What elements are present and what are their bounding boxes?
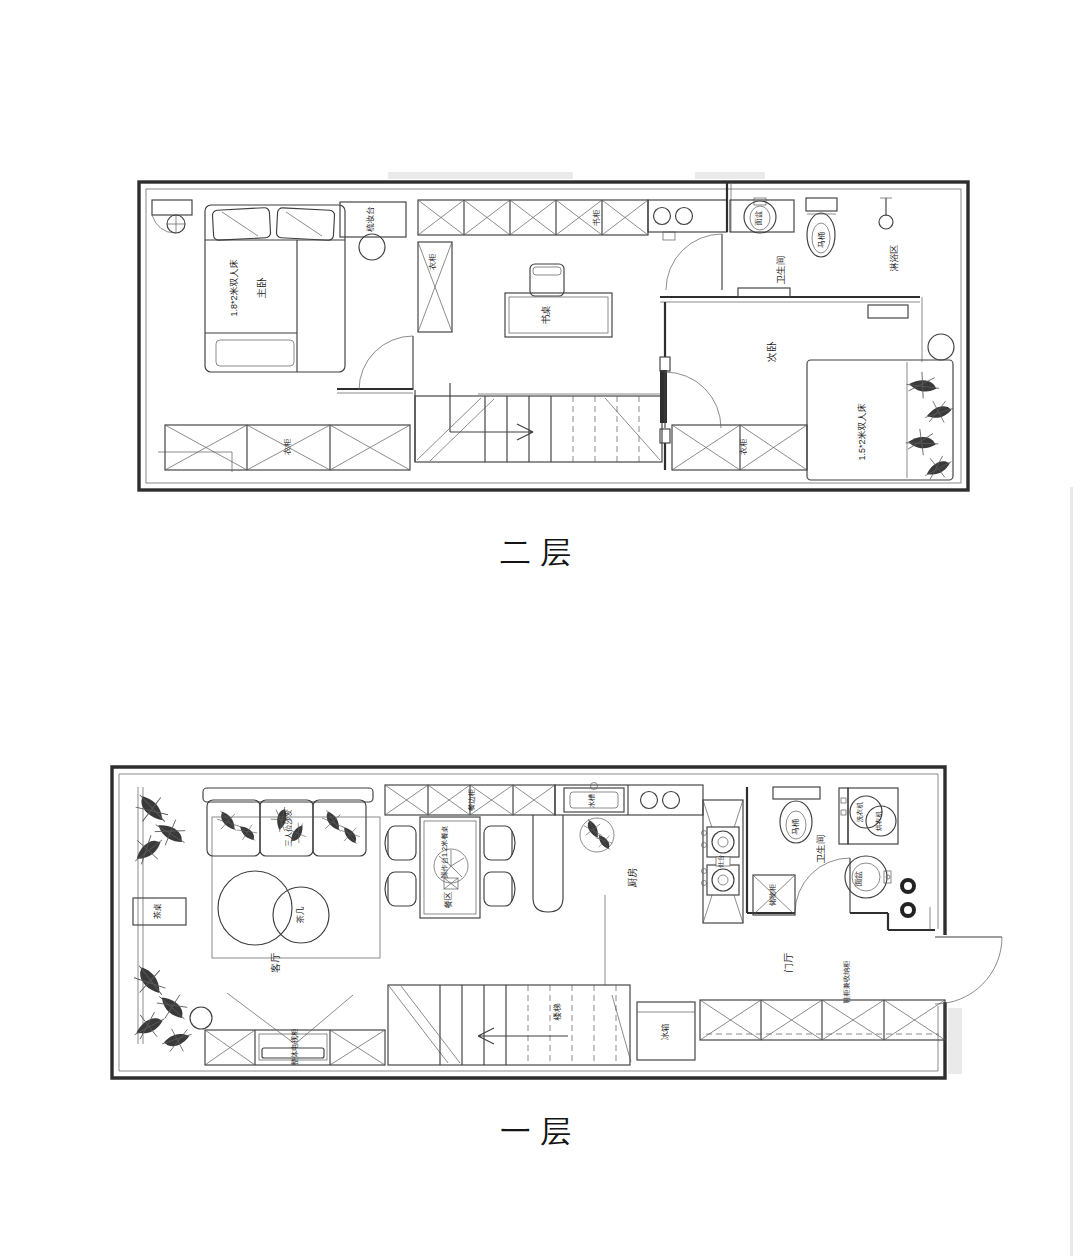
- label-basin-floor2: 面盆: [754, 210, 763, 227]
- floor2-plan: 1.8*2米双人床 主卧 梳妆台 书柜 衣柜: [139, 182, 968, 570]
- label-dining-table: 操作台1.2米餐桌: [440, 825, 449, 878]
- label-bathroom-floor1: 卫生间: [815, 835, 826, 864]
- scan-shadow: [388, 172, 573, 179]
- plant-upper: [127, 786, 192, 869]
- label-shoe-cabinet: 鞋柜兼收纳柜: [842, 960, 851, 1003]
- label-sideboard: 餐边柜: [467, 788, 476, 811]
- floor2-title: 二层: [500, 534, 580, 570]
- label-second-bed-size: 1.5*2米双人床: [857, 403, 867, 460]
- label-kitchen: 厨房: [627, 868, 638, 888]
- label-dining-area: 餐区: [443, 892, 453, 909]
- label-wardrobe-right: 衣柜: [739, 438, 748, 455]
- floor-plan-drawing: 1.8*2米双人床 主卧 梳妆台 书柜 衣柜: [0, 0, 1080, 1256]
- label-foyer: 门厅: [783, 953, 794, 973]
- label-toilet-floor1: 马桶: [791, 819, 800, 835]
- label-bathroom-floor2: 卫生间: [775, 256, 786, 285]
- label-washer: 洗衣机: [856, 802, 864, 824]
- label-wardrobe-column: 衣柜: [428, 253, 437, 270]
- ceiling-unit-symbol: [152, 200, 192, 233]
- scan-shadow: [695, 172, 765, 179]
- label-fridge: 冰箱: [660, 1023, 670, 1041]
- label-stairs: 楼梯: [552, 1003, 562, 1021]
- desk: [505, 264, 612, 337]
- label-storage-cabinet: 储物柜: [768, 883, 777, 906]
- label-second-bedroom: 次卧: [766, 341, 777, 362]
- label-basin-floor1: 面盆: [854, 871, 863, 887]
- label-tv-cabinet: 整体电视柜: [290, 1028, 299, 1066]
- label-master-bed-size: 1.8*2米双人床: [229, 259, 239, 316]
- label-stove-column: 灶台: [717, 855, 725, 868]
- scan-shadow: [1070, 487, 1073, 1256]
- label-living-room: 客厅: [270, 953, 281, 973]
- stairs-floor1: [388, 895, 631, 1065]
- label-shower-area: 淋浴区: [889, 245, 899, 272]
- floor1-plan: 茶桌 三人位沙发 茶几 客厅: [112, 767, 1002, 1149]
- floor1-inner-wall-line: [119, 774, 938, 1071]
- floor2-outer-wall: [139, 182, 968, 490]
- window-mullion: [138, 787, 143, 1044]
- label-dryer: 烘衣机: [875, 811, 883, 832]
- label-bookcase: 书柜: [592, 209, 601, 226]
- second-bed: [807, 360, 956, 484]
- second-bedroom-door: [660, 302, 721, 470]
- label-coffee-table: 茶几: [295, 906, 305, 924]
- tv-cabinet: [190, 993, 385, 1065]
- kitchen-counter: [533, 783, 703, 913]
- label-sofa: 三人位沙发: [284, 809, 293, 847]
- scan-shadow: [948, 1008, 962, 1074]
- stairs-floor2: [415, 370, 667, 462]
- bookcase-row: [418, 200, 648, 235]
- shoe-cabinet: [700, 1000, 945, 1040]
- label-sink: 水槽: [588, 794, 596, 808]
- master-bedroom-door: [337, 336, 413, 393]
- bathroom-floor1: [747, 787, 914, 930]
- coffee-table: [218, 871, 329, 945]
- floor-plan-sheet: 1.8*2米双人床 主卧 梳妆台 书柜 衣柜: [0, 0, 1080, 1256]
- label-wardrobe-left: 衣柜: [283, 438, 292, 455]
- master-bed: [205, 205, 345, 372]
- bathroom-floor2: [648, 182, 954, 362]
- label-toilet-floor2: 马桶: [817, 232, 826, 248]
- label-master-bedroom: 主卧: [256, 277, 267, 299]
- label-tea-table: 茶桌: [153, 903, 162, 919]
- floor1-outer-wall: [112, 767, 945, 1078]
- floor1-title: 一层: [500, 1113, 580, 1149]
- label-dressing-table: 梳妆台: [365, 206, 375, 233]
- label-desk: 书桌: [540, 306, 551, 325]
